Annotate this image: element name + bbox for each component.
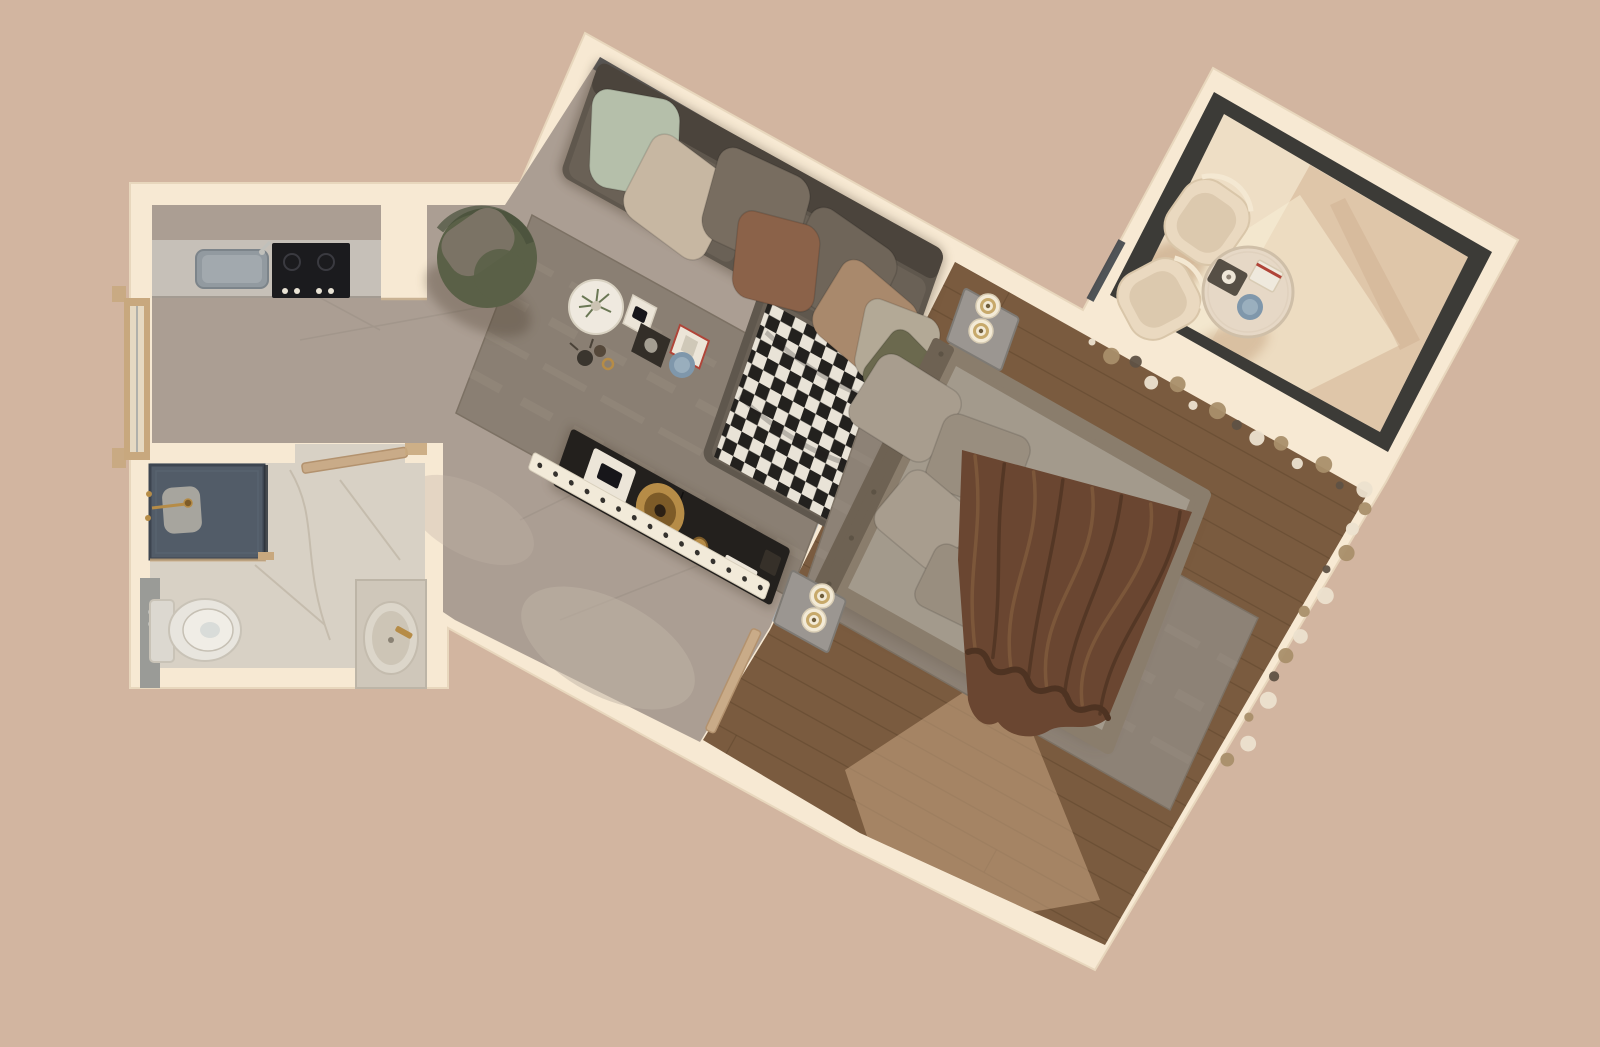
garland-bead <box>1103 348 1120 365</box>
garland-bead <box>1232 420 1242 430</box>
shower-mat <box>161 486 202 535</box>
cooktop <box>272 243 350 298</box>
garland-bead <box>1323 565 1331 573</box>
garland-bead <box>1240 736 1256 752</box>
garland-bead <box>1356 481 1372 497</box>
table-lamp <box>810 584 834 608</box>
kitchen-wall-column <box>381 205 427 300</box>
tuft-button <box>849 535 854 540</box>
garland-bead <box>1188 401 1197 410</box>
floor-plan-stage <box>0 0 1600 1047</box>
floor-plan-svg <box>0 0 1600 1047</box>
cooktop-knob <box>316 288 322 294</box>
garland-bead <box>1144 376 1158 390</box>
garland-bead <box>1244 713 1253 722</box>
vanity <box>356 580 426 688</box>
cooktop-knob <box>328 288 334 294</box>
garland-bead <box>1299 606 1310 617</box>
garland-bead <box>1274 436 1289 451</box>
shower-head <box>184 499 192 507</box>
garland-bead <box>1336 481 1344 489</box>
cooktop-knob <box>294 288 300 294</box>
garland-bead <box>1278 648 1293 663</box>
balcony-table <box>1203 247 1293 337</box>
bathroom <box>140 443 427 688</box>
garland-bead <box>1220 753 1234 767</box>
garland-bead <box>1249 430 1264 445</box>
garland-bead <box>1130 356 1142 368</box>
table-lamp <box>969 319 993 343</box>
tuft-button <box>938 351 943 356</box>
cooktop-knob <box>282 288 288 294</box>
garland-bead <box>1269 671 1279 681</box>
garland-bead <box>1359 502 1372 515</box>
table-lamp <box>976 294 1000 318</box>
garland-bead <box>1293 629 1308 644</box>
garland-bead <box>1170 376 1186 392</box>
garland-bead <box>1338 545 1354 561</box>
tuft-button <box>871 489 876 494</box>
window-sill <box>112 448 126 468</box>
window-sill <box>112 286 126 302</box>
door-jamb <box>405 443 427 455</box>
shower-valve <box>146 491 152 497</box>
drain <box>388 637 394 643</box>
garland-bead <box>1260 692 1277 709</box>
shower-frame-corner <box>258 552 274 560</box>
garland-bead <box>1292 458 1303 469</box>
toilet <box>150 599 241 662</box>
garland-bead <box>1317 587 1334 604</box>
table-lamp <box>802 608 826 632</box>
garland-bead <box>1089 339 1096 346</box>
shower-valve <box>145 515 151 521</box>
garland-bead <box>1315 456 1332 473</box>
garland-bead <box>1209 402 1226 419</box>
garland-bead <box>1346 523 1359 536</box>
walk-in-shower <box>145 465 274 560</box>
